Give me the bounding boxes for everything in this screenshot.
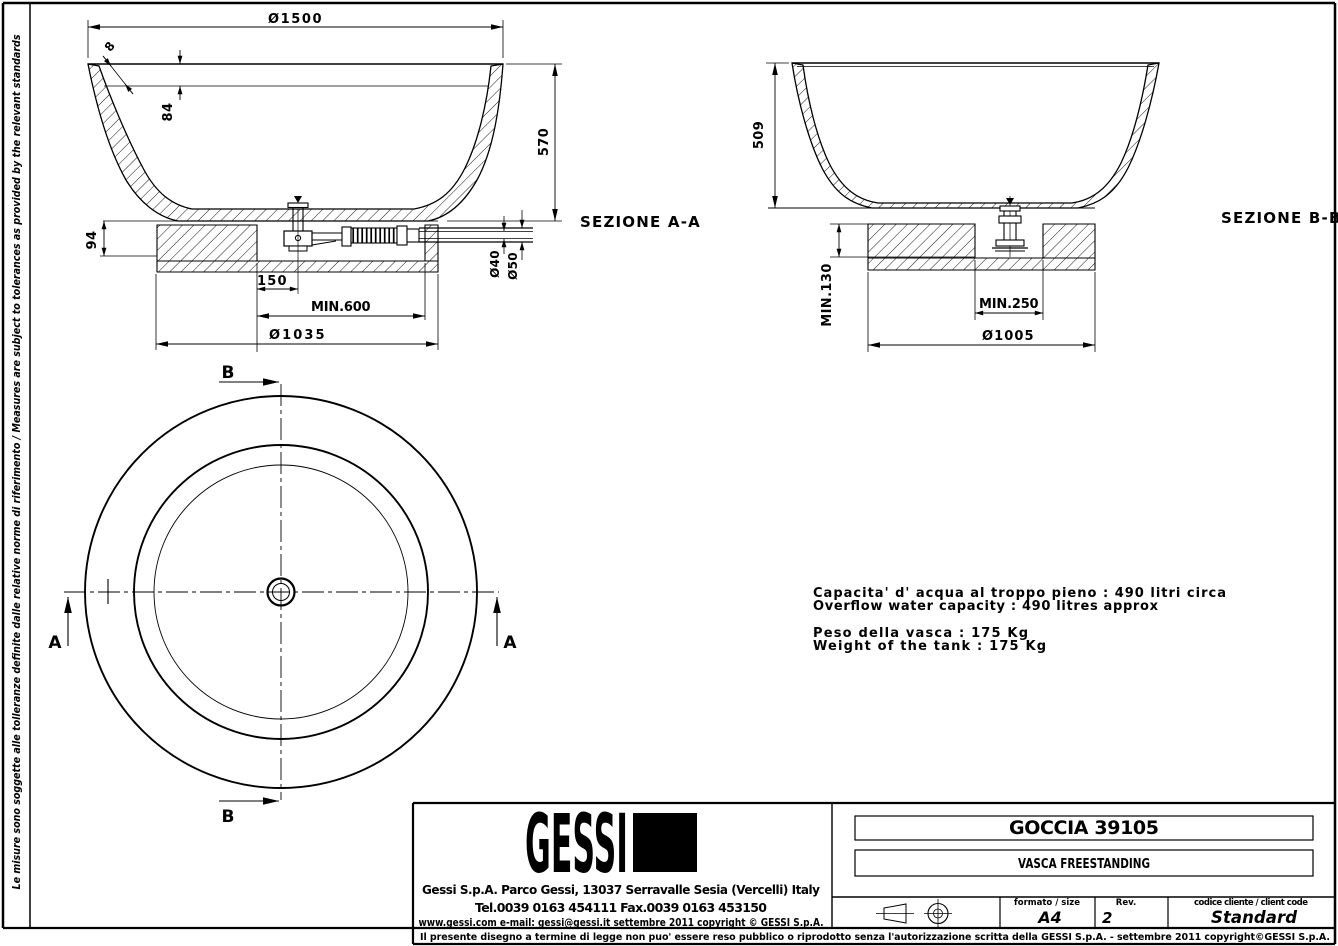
dim-label-min600: MIN.600 <box>311 300 371 315</box>
plan-view: B B A A <box>48 363 517 827</box>
company-web: www.gessi.com e-mail: gessi@gessi.it set… <box>419 916 824 929</box>
section-a-drawing <box>88 64 533 272</box>
section-a-label: SEZIONE A-A <box>580 213 701 231</box>
section-b-label: SEZIONE B-B <box>1221 209 1338 227</box>
gessi-logo-text: GESSI <box>525 798 628 892</box>
notes-block: Capacita' d' acqua al troppo pieno : 490… <box>813 586 1226 654</box>
disclaimer-strip: Il presente disegno a termine di legge n… <box>420 932 1330 943</box>
dim-label-dia1035: Ø1035 <box>269 328 325 343</box>
plinth-section-b <box>868 224 1095 270</box>
cutting-plane-b: B B <box>219 363 279 827</box>
dim-label-min130: MIN.130 <box>820 263 835 327</box>
title-block: GESSI Gessi S.p.A. Parco Gessi, 13037 Se… <box>413 798 1335 944</box>
note-capacity-en: Overflow water capacity : 490 litres app… <box>813 599 1159 614</box>
dim-label-150: 150 <box>257 274 287 289</box>
client-code-value: Standard <box>1211 908 1297 927</box>
dim-label-dia50: Ø50 <box>506 252 520 280</box>
rev-value: 2 <box>1102 909 1112 927</box>
dim-label-dia1500: Ø1500 <box>268 12 322 27</box>
company-address: Gessi S.p.A. Parco Gessi, 13037 Serraval… <box>422 883 820 897</box>
dim-label-94: 94 <box>85 231 100 250</box>
drawing-sheet: Le misure sono soggette alle tolleranze … <box>0 0 1338 946</box>
gessi-logo-square <box>633 813 697 872</box>
dim-label-570: 570 <box>537 128 552 156</box>
legal-disclaimer: Il presente disegno a termine di legge n… <box>420 932 1330 943</box>
flex-hose <box>351 228 397 243</box>
format-label: formato / size <box>1014 898 1080 908</box>
dim-label-min250: MIN.250 <box>979 297 1039 312</box>
drain-assembly-a <box>284 196 533 251</box>
format-value: A4 <box>1036 908 1062 927</box>
product-type: VASCA FREESTANDING <box>1018 857 1150 872</box>
section-b-drawing <box>768 63 1159 270</box>
cut-label-a-right: A <box>503 633 517 653</box>
section-a-dimensions: Ø1500 8 84 570 94 150 MIN.600 Ø1035 Ø40 … <box>85 12 701 352</box>
cut-label-b-bottom: B <box>222 807 235 827</box>
dim-label-wall8: 8 <box>102 39 118 54</box>
product-name: GOCCIA 39105 <box>1009 817 1159 839</box>
dim-label-84: 84 <box>161 103 176 122</box>
company-phone: Tel.0039 0163 454111 Fax.0039 0163 45315… <box>475 900 767 915</box>
dim-label-509: 509 <box>752 121 767 149</box>
tub-wall-section-b <box>792 63 1159 208</box>
rev-label: Rev. <box>1116 898 1136 908</box>
tolerance-side-note: Le misure sono soggette alle tolleranze … <box>10 34 23 889</box>
dim-label-dia40: Ø40 <box>488 250 502 278</box>
gessi-logo: GESSI <box>525 798 697 892</box>
dim-label-dia1005: Ø1005 <box>982 329 1034 344</box>
note-weight-en: Weight of the tank : 175 Kg <box>813 639 1046 654</box>
popup-rod-icon <box>294 196 302 203</box>
projection-symbol-icon <box>876 899 952 928</box>
client-code-label: codice cliente / client code <box>1194 898 1308 908</box>
cut-label-b-top: B <box>222 363 235 383</box>
cut-label-a-left: A <box>48 633 62 653</box>
